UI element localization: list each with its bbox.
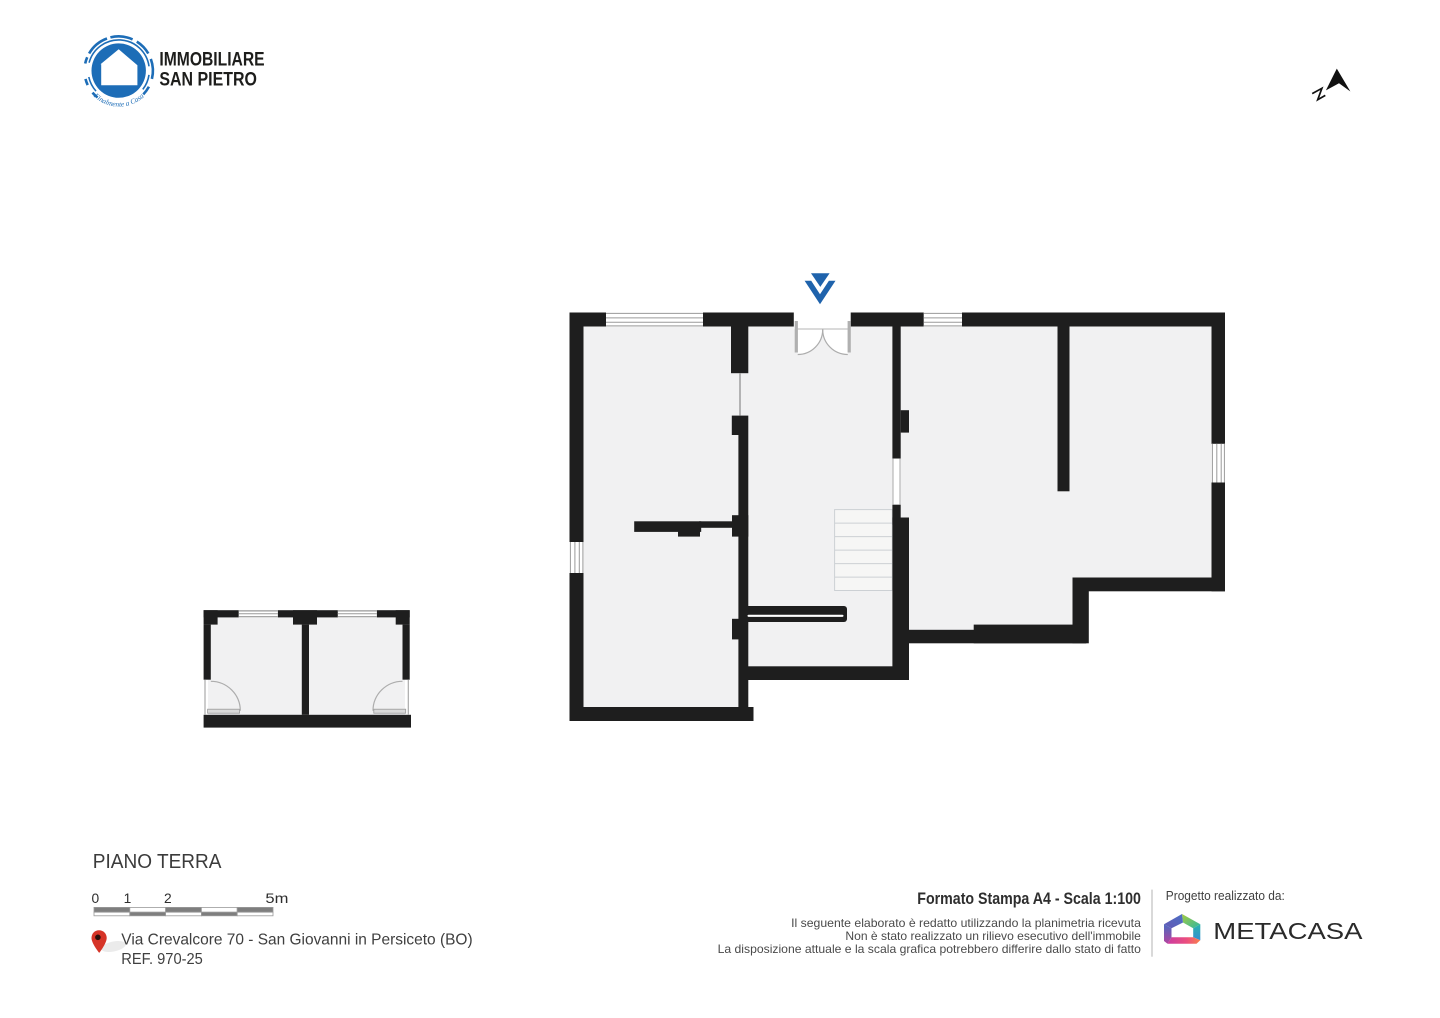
svg-text:1: 1 [124, 891, 132, 906]
svg-text:Non è stato realizzato un rili: Non è stato realizzato un rilievo esecut… [845, 929, 1141, 943]
svg-text:La disposizione attuale e la s: La disposizione attuale e la scala grafi… [718, 942, 1142, 956]
svg-text:0: 0 [92, 891, 100, 906]
svg-text:Via Crevalcore 70 - San Giovan: Via Crevalcore 70 - San Giovanni in Pers… [121, 932, 472, 949]
svg-text:2: 2 [164, 891, 172, 906]
svg-text:Formato Stampa A4 - Scala 1:10: Formato Stampa A4 - Scala 1:100 [917, 889, 1141, 908]
svg-text:Il seguente elaborato è redatt: Il seguente elaborato è redatto utilizza… [791, 916, 1141, 930]
svg-text:PIANO TERRA: PIANO TERRA [93, 851, 222, 873]
svg-text:Progetto realizzato da:: Progetto realizzato da: [1166, 889, 1285, 903]
svg-text:METACASA: METACASA [1213, 918, 1363, 944]
svg-text:SAN PIETRO: SAN PIETRO [159, 68, 257, 90]
svg-text:REF. 970-25: REF. 970-25 [121, 951, 203, 968]
svg-text:5m: 5m [265, 891, 288, 906]
